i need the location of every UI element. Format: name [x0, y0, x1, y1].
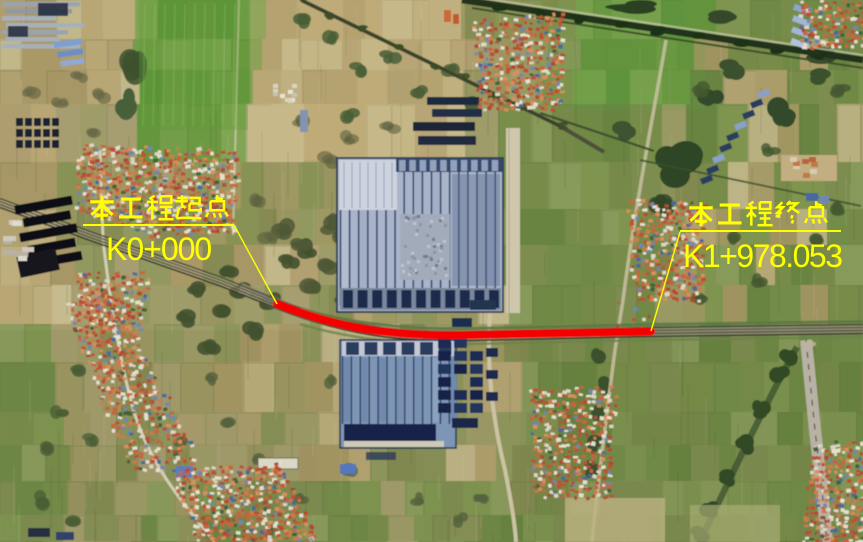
svg-text:K1+978.053: K1+978.053	[683, 238, 842, 274]
svg-text:K0+000: K0+000	[106, 231, 211, 267]
